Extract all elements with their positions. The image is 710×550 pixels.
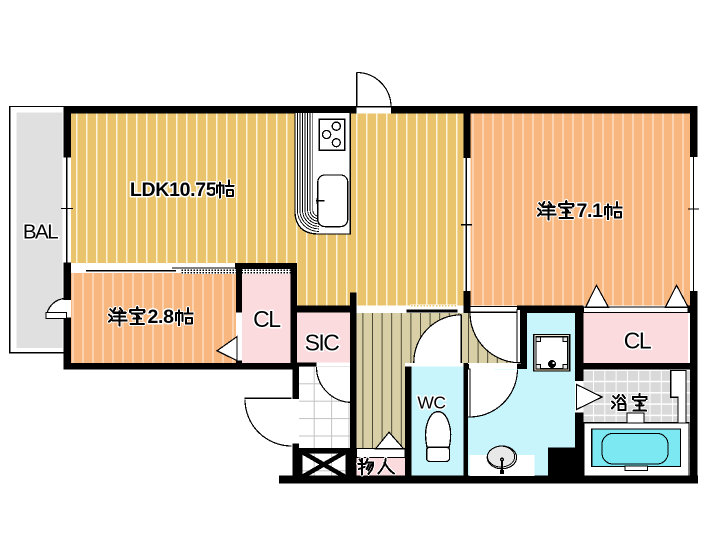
svg-text:SIC: SIC (305, 329, 340, 355)
svg-text:2.8: 2.8 (148, 306, 175, 328)
svg-text:CL: CL (624, 327, 652, 353)
svg-text:CL: CL (253, 306, 281, 332)
svg-text:WC: WC (417, 393, 445, 413)
svg-text:7.1: 7.1 (577, 200, 604, 222)
svg-text:BAL: BAL (23, 220, 58, 243)
svg-text:LDK10.75: LDK10.75 (130, 179, 217, 201)
